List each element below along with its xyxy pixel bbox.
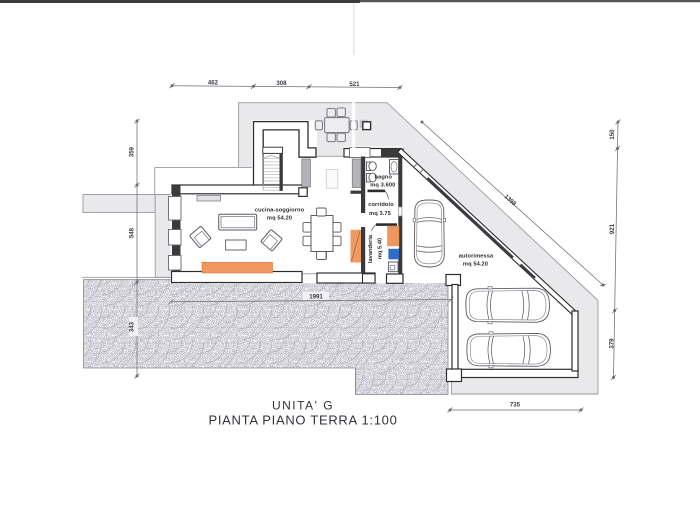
svg-text:mq 3.600: mq 3.600 [370, 183, 395, 189]
svg-text:mq 3.75: mq 3.75 [369, 211, 391, 217]
svg-text:308: 308 [276, 80, 287, 87]
svg-text:521: 521 [349, 81, 360, 88]
svg-text:735: 735 [510, 402, 521, 409]
svg-text:UNITA' G: UNITA' G [272, 399, 334, 413]
svg-text:PIANTA PIANO TERRA 1:100: PIANTA PIANO TERRA 1:100 [209, 413, 398, 428]
svg-text:548: 548 [129, 227, 136, 238]
svg-text:1398: 1398 [503, 193, 518, 208]
svg-text:mq 5.40: mq 5.40 [378, 238, 384, 259]
svg-text:1991: 1991 [309, 294, 323, 301]
svg-text:150: 150 [609, 129, 616, 140]
svg-text:mq 54.20: mq 54.20 [463, 262, 488, 268]
svg-text:343: 343 [129, 321, 136, 332]
svg-text:lavanderia: lavanderia [368, 234, 374, 263]
svg-text:corridoio: corridoio [368, 202, 394, 208]
svg-text:379: 379 [609, 338, 616, 349]
svg-text:921: 921 [609, 223, 616, 234]
svg-text:autorimessa: autorimessa [459, 254, 494, 260]
svg-text:cucina-soggiorno: cucina-soggiorno [255, 208, 305, 214]
svg-text:359: 359 [129, 146, 136, 157]
svg-text:mq 54.20: mq 54.20 [267, 216, 292, 222]
svg-text:462: 462 [208, 79, 219, 86]
svg-text:bagno: bagno [375, 175, 393, 181]
